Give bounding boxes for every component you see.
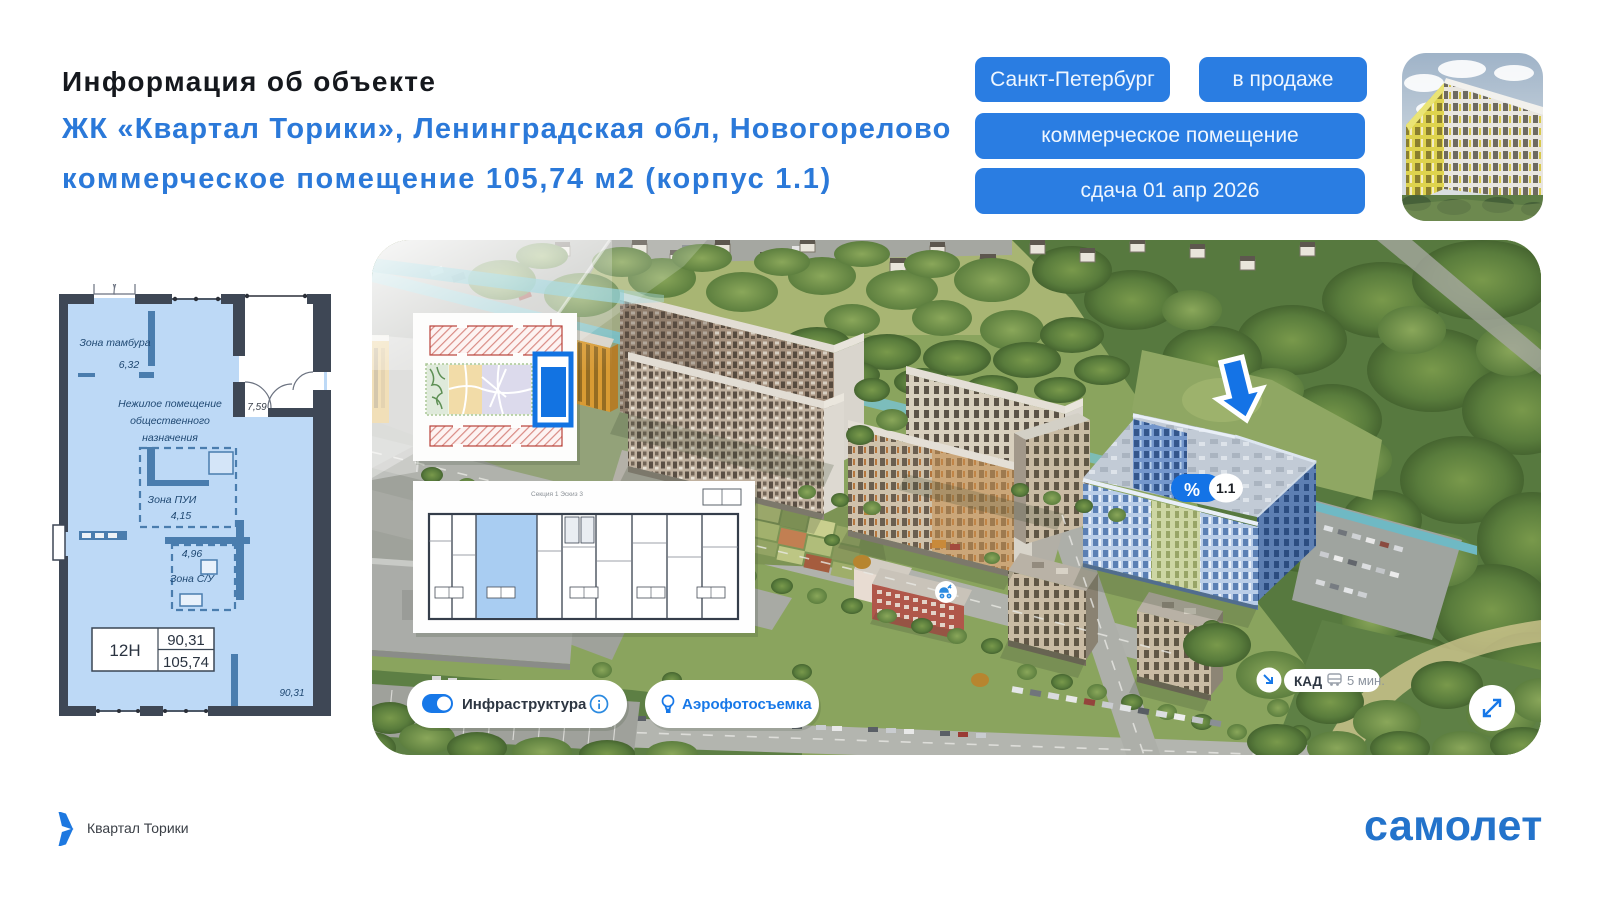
svg-text:Инфраструктура: Инфраструктура	[462, 696, 587, 713]
svg-text:1.1: 1.1	[1216, 480, 1236, 496]
svg-text:4,15: 4,15	[171, 510, 192, 522]
svg-text:12Н: 12Н	[109, 641, 140, 660]
svg-text:90,31: 90,31	[167, 632, 205, 649]
svg-text:Нежилое помещение: Нежилое помещение	[118, 398, 222, 410]
svg-text:%: %	[1184, 480, 1200, 500]
svg-text:Зона С/У: Зона С/У	[170, 573, 215, 585]
svg-text:Секция 1 Эскиз 3: Секция 1 Эскиз 3	[531, 491, 583, 498]
svg-text:Зона тамбура: Зона тамбура	[79, 337, 150, 349]
svg-text:общественного: общественного	[130, 415, 210, 427]
svg-text:КАД: КАД	[1294, 674, 1322, 689]
svg-text:7,59: 7,59	[247, 402, 267, 413]
svg-text:Зона ПУИ: Зона ПУИ	[148, 494, 197, 506]
svg-text:5 мин.: 5 мин.	[1347, 673, 1385, 688]
svg-text:105,74: 105,74	[163, 654, 209, 671]
svg-text:Аэрофотосъемка: Аэрофотосъемка	[682, 696, 812, 713]
svg-text:6,32: 6,32	[119, 359, 140, 371]
svg-text:4,96: 4,96	[182, 548, 203, 560]
svg-text:90,31: 90,31	[279, 688, 304, 699]
svg-text:назначения: назначения	[142, 432, 198, 444]
